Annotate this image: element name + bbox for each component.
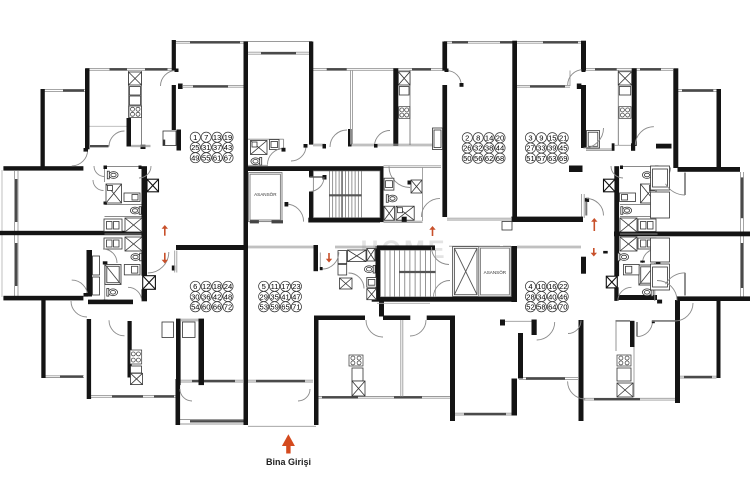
svg-text:57: 57 xyxy=(537,154,545,163)
svg-text:3: 3 xyxy=(528,133,532,142)
svg-text:41: 41 xyxy=(281,292,289,301)
svg-text:2: 2 xyxy=(465,133,469,142)
svg-text:31: 31 xyxy=(202,143,210,152)
svg-text:15: 15 xyxy=(548,133,556,142)
svg-text:36: 36 xyxy=(202,292,210,301)
svg-text:Bina Girişi: Bina Girişi xyxy=(266,457,311,467)
svg-text:ASANSÖR: ASANSÖR xyxy=(484,269,507,275)
svg-text:14: 14 xyxy=(485,133,493,142)
svg-text:40: 40 xyxy=(548,292,556,301)
svg-text:47: 47 xyxy=(292,292,300,301)
svg-text:32: 32 xyxy=(474,144,482,153)
svg-text:35: 35 xyxy=(270,292,278,301)
svg-text:56: 56 xyxy=(474,154,482,163)
svg-text:26: 26 xyxy=(463,144,471,153)
svg-text:39: 39 xyxy=(548,144,556,153)
svg-text:23: 23 xyxy=(292,282,300,291)
svg-text:20: 20 xyxy=(496,133,504,142)
svg-text:29: 29 xyxy=(259,292,267,301)
svg-text:37: 37 xyxy=(213,143,221,152)
svg-text:22: 22 xyxy=(559,282,567,291)
svg-text:71: 71 xyxy=(292,303,300,312)
svg-text:44: 44 xyxy=(496,144,504,153)
svg-text:13: 13 xyxy=(213,133,221,142)
svg-text:52: 52 xyxy=(526,303,534,312)
svg-text:54: 54 xyxy=(191,303,199,312)
svg-text:16: 16 xyxy=(548,282,556,291)
svg-text:33: 33 xyxy=(537,144,545,153)
svg-text:21: 21 xyxy=(559,133,567,142)
svg-text:18: 18 xyxy=(213,282,221,291)
svg-text:27: 27 xyxy=(526,144,534,153)
svg-text:25: 25 xyxy=(191,143,199,152)
svg-text:48: 48 xyxy=(224,292,232,301)
svg-text:17: 17 xyxy=(281,282,289,291)
svg-text:49: 49 xyxy=(191,153,199,162)
svg-text:12: 12 xyxy=(202,282,210,291)
svg-text:5: 5 xyxy=(262,282,266,291)
svg-text:38: 38 xyxy=(485,144,493,153)
svg-text:50: 50 xyxy=(463,154,471,163)
svg-text:8: 8 xyxy=(476,133,480,142)
svg-text:11: 11 xyxy=(271,282,279,291)
svg-text:65: 65 xyxy=(281,303,289,312)
svg-text:61: 61 xyxy=(213,153,221,162)
svg-text:45: 45 xyxy=(559,144,567,153)
svg-text:1: 1 xyxy=(193,133,197,142)
svg-text:4: 4 xyxy=(528,282,532,291)
svg-text:59: 59 xyxy=(270,303,278,312)
svg-text:19: 19 xyxy=(224,133,232,142)
svg-text:43: 43 xyxy=(224,143,232,152)
svg-text:51: 51 xyxy=(526,154,534,163)
svg-text:10: 10 xyxy=(537,282,545,291)
svg-text:7: 7 xyxy=(204,133,208,142)
svg-text:60: 60 xyxy=(202,303,210,312)
svg-text:69: 69 xyxy=(559,154,567,163)
svg-text:6: 6 xyxy=(193,282,197,291)
svg-text:62: 62 xyxy=(485,154,493,163)
svg-text:68: 68 xyxy=(496,154,504,163)
svg-text:67: 67 xyxy=(224,153,232,162)
svg-text:55: 55 xyxy=(202,153,210,162)
svg-text:30: 30 xyxy=(191,292,199,301)
svg-text:58: 58 xyxy=(537,303,545,312)
svg-text:53: 53 xyxy=(259,303,267,312)
svg-text:72: 72 xyxy=(224,303,232,312)
svg-text:28: 28 xyxy=(526,292,534,301)
svg-text:24: 24 xyxy=(224,282,232,291)
svg-text:9: 9 xyxy=(539,133,543,142)
svg-text:ASANSÖR: ASANSÖR xyxy=(254,191,277,197)
svg-text:63: 63 xyxy=(548,154,556,163)
svg-text:42: 42 xyxy=(213,292,221,301)
svg-text:64: 64 xyxy=(548,303,556,312)
svg-text:66: 66 xyxy=(213,303,221,312)
svg-text:70: 70 xyxy=(559,303,567,312)
svg-text:34: 34 xyxy=(537,292,545,301)
svg-text:46: 46 xyxy=(559,292,567,301)
